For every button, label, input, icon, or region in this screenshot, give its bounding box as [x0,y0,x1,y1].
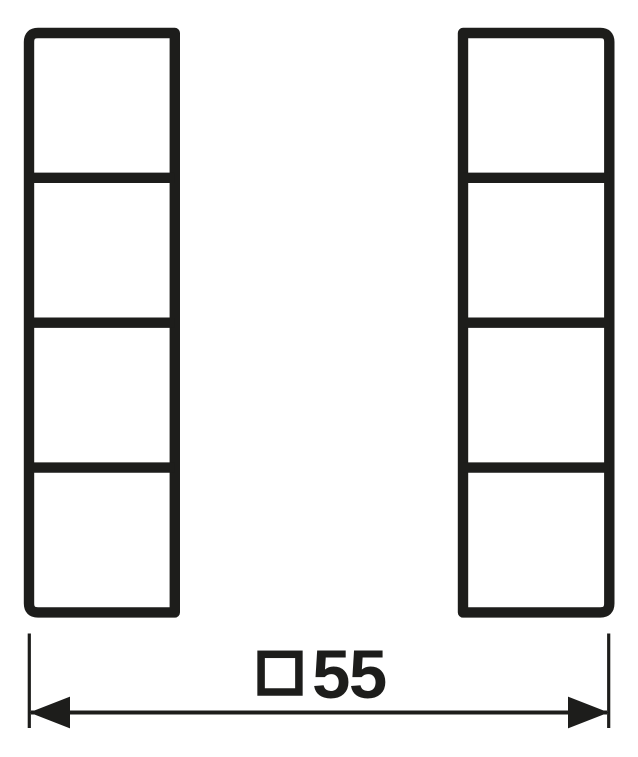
svg-text:55: 55 [312,636,386,713]
